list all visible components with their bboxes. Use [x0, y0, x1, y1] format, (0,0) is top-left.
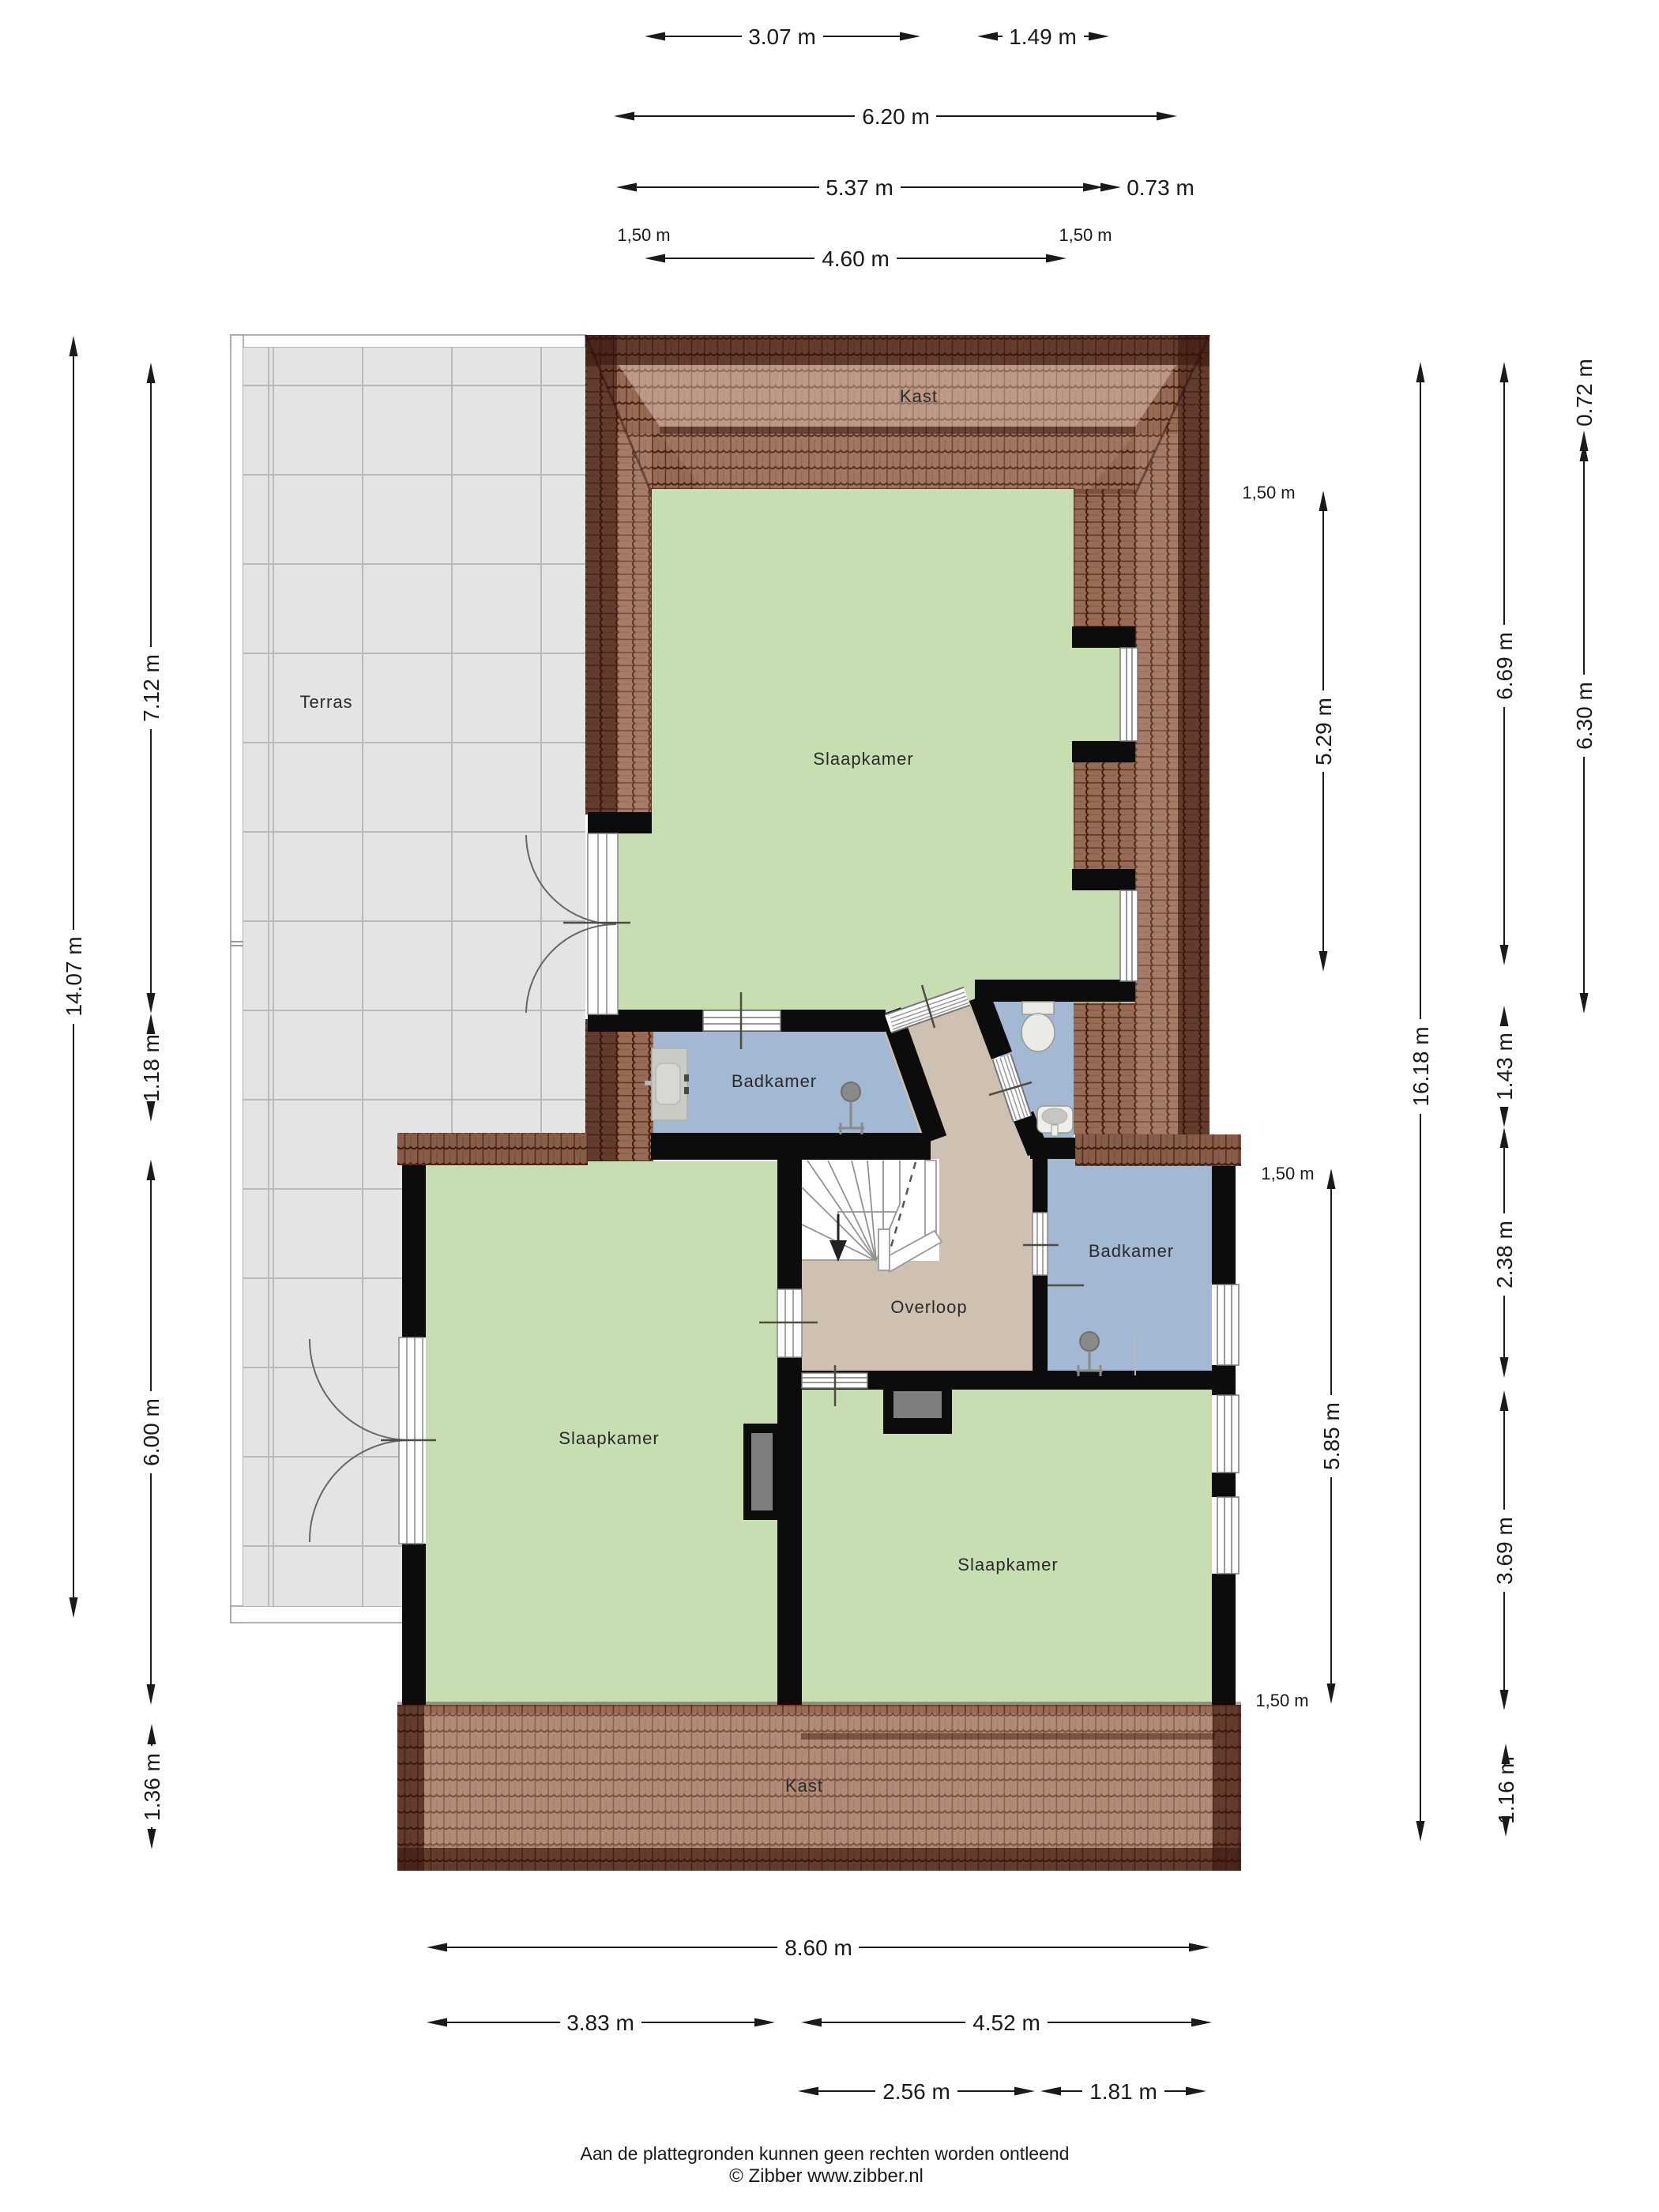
svg-text:3.69 m: 3.69 m [1492, 1517, 1517, 1585]
svg-text:4.52 m: 4.52 m [972, 2011, 1040, 2035]
svg-text:2.56 m: 2.56 m [882, 2079, 950, 2104]
svg-text:3.07 m: 3.07 m [748, 24, 816, 49]
svg-text:Badkamer: Badkamer [1089, 1241, 1174, 1261]
svg-text:Slaapkamer: Slaapkamer [957, 1555, 1058, 1574]
svg-text:6.20 m: 6.20 m [862, 104, 930, 129]
svg-text:1.43 m: 1.43 m [1492, 1033, 1517, 1100]
svg-text:5.37 m: 5.37 m [826, 175, 893, 200]
svg-text:1,50 m: 1,50 m [1261, 1164, 1314, 1183]
svg-text:1,50 m: 1,50 m [1255, 1691, 1308, 1710]
svg-text:Aan de plattegronden kunnen ge: Aan de plattegronden kunnen geen rechten… [581, 2143, 1070, 2164]
svg-text:7.12 m: 7.12 m [139, 654, 164, 722]
svg-text:1.36 m: 1.36 m [140, 1753, 164, 1821]
svg-text:6.00 m: 6.00 m [139, 1398, 164, 1466]
svg-text:4.60 m: 4.60 m [822, 246, 890, 271]
svg-text:1,50 m: 1,50 m [1059, 225, 1112, 245]
svg-text:0.73 m: 0.73 m [1127, 175, 1194, 200]
svg-text:1,50 m: 1,50 m [1242, 483, 1295, 502]
svg-text:Slaapkamer: Slaapkamer [813, 749, 913, 769]
svg-text:6.69 m: 6.69 m [1492, 632, 1517, 700]
svg-text:1.18 m: 1.18 m [139, 1034, 164, 1102]
svg-text:0.72 m: 0.72 m [1572, 359, 1597, 427]
svg-text:5.29 m: 5.29 m [1311, 698, 1336, 766]
svg-text:1.49 m: 1.49 m [1009, 24, 1077, 49]
svg-text:Overloop: Overloop [890, 1297, 967, 1317]
svg-text:Kast: Kast [785, 1776, 823, 1796]
svg-text:5.85 m: 5.85 m [1319, 1402, 1344, 1470]
svg-text:Kast: Kast [900, 386, 938, 406]
svg-text:Badkamer: Badkamer [732, 1071, 817, 1091]
svg-text:1,50 m: 1,50 m [617, 225, 670, 245]
svg-text:Terras: Terras [299, 692, 352, 712]
svg-text:3.83 m: 3.83 m [566, 2011, 634, 2035]
svg-text:1.16 m: 1.16 m [1494, 1756, 1518, 1824]
svg-text:16.18 m: 16.18 m [1409, 1026, 1433, 1106]
svg-text:Slaapkamer: Slaapkamer [559, 1428, 659, 1448]
svg-text:1.81 m: 1.81 m [1089, 2079, 1157, 2104]
svg-text:8.60 m: 8.60 m [784, 1935, 852, 1960]
svg-text:© Zibber www.zibber.nl: © Zibber www.zibber.nl [729, 2165, 924, 2187]
svg-text:14.07 m: 14.07 m [62, 936, 86, 1016]
svg-text:2.38 m: 2.38 m [1492, 1221, 1517, 1288]
svg-text:6.30 m: 6.30 m [1572, 682, 1597, 750]
